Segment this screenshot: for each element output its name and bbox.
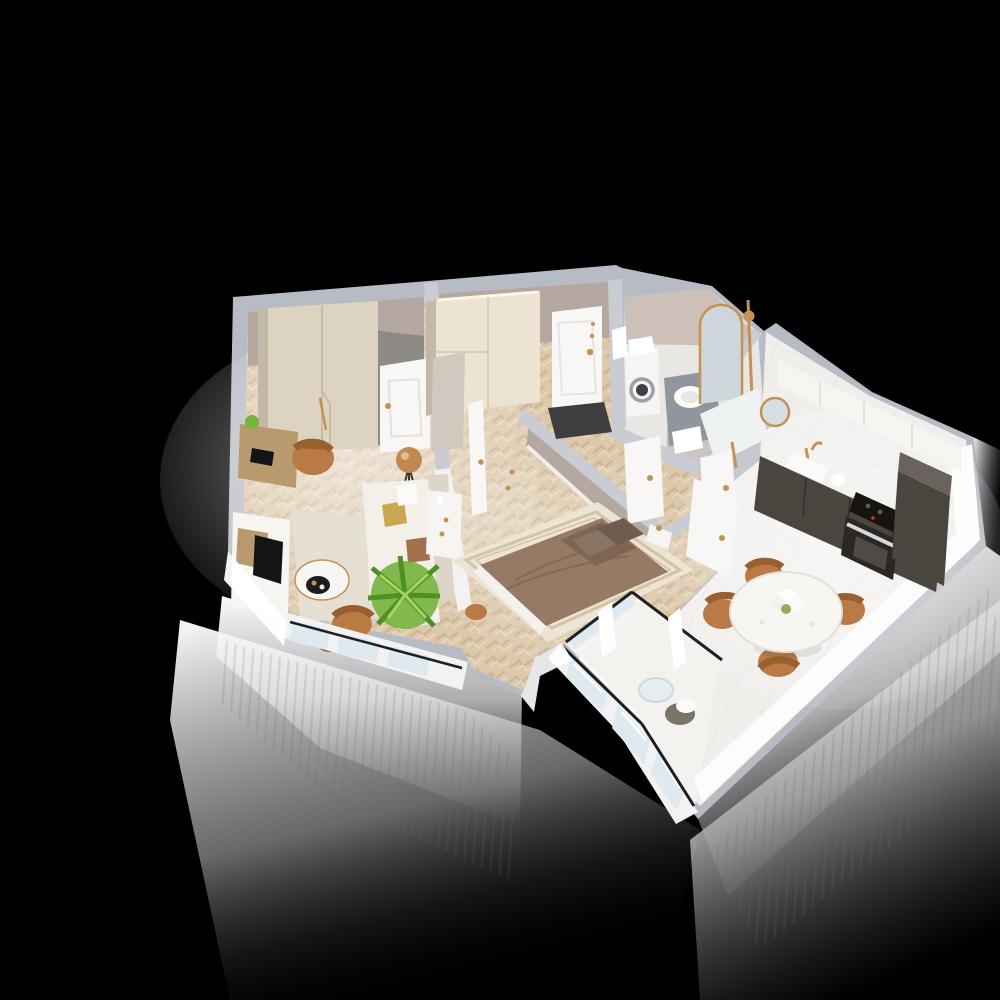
chair-cushion [676, 699, 696, 713]
console-decor-2 [440, 532, 445, 537]
leaning-mirror [431, 352, 465, 452]
washer-drum [636, 384, 648, 396]
floorplan-svg [0, 0, 1000, 1000]
console-bust [436, 496, 444, 504]
washing-machine [625, 348, 660, 417]
console-decor [444, 518, 449, 523]
table-glass [759, 619, 765, 625]
hall-console [426, 490, 462, 560]
living-door-handle [385, 403, 391, 409]
nightstand-lamp [656, 525, 662, 531]
desk-plant [245, 415, 259, 429]
balcony-table [639, 678, 673, 702]
kettle [832, 474, 845, 487]
cooktop-indicator [871, 516, 875, 520]
table-glass-2 [809, 621, 815, 627]
round-mirror [761, 398, 789, 426]
entry-door-lock-upper [591, 322, 595, 326]
bedroom-door-handle [478, 459, 484, 465]
wall-sconce-2 [506, 486, 511, 491]
kitchen-door-handle [719, 535, 725, 541]
shower-door-handle [723, 485, 729, 491]
entry-door-lock [590, 334, 594, 338]
wall-sconce [510, 470, 515, 475]
bedroom-pouf [465, 604, 487, 620]
bathroom-door-handle [647, 475, 653, 481]
entry-door-handle [587, 349, 593, 355]
shower-head [744, 311, 755, 322]
floorplan-render [0, 0, 1000, 1000]
hanging-towel [612, 326, 627, 360]
bathroom-door [624, 436, 664, 524]
coffee-table [295, 560, 349, 600]
cushion-white [396, 483, 418, 506]
sink-basin [681, 391, 699, 403]
arch-mirror [700, 305, 742, 404]
